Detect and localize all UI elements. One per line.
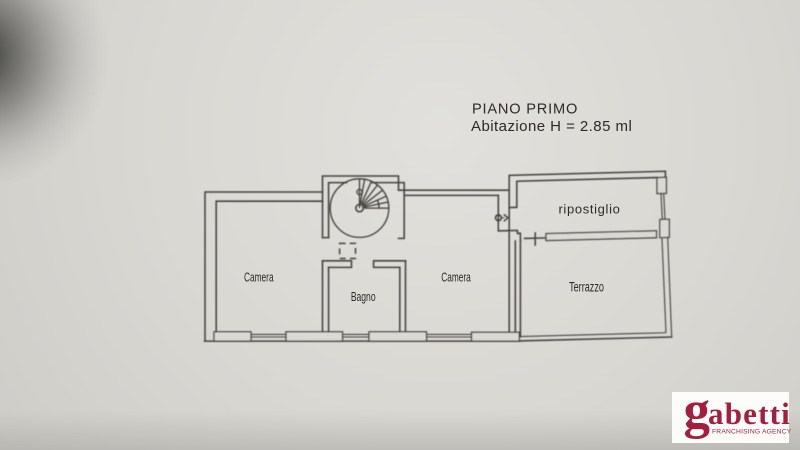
svg-text:PIANO PRIMO: PIANO PRIMO [472,102,578,118]
svg-text:Terrazzo: Terrazzo [569,281,604,295]
svg-text:FRANCHISING AGENCY: FRANCHISING AGENCY [712,428,792,435]
svg-text:ripostiglio: ripostiglio [558,202,620,217]
svg-text:Abitazione H = 2.85 ml: Abitazione H = 2.85 ml [471,118,632,135]
svg-text:Bagno: Bagno [351,291,376,305]
svg-text:Camera: Camera [244,271,274,285]
svg-text:Camera: Camera [441,271,471,285]
